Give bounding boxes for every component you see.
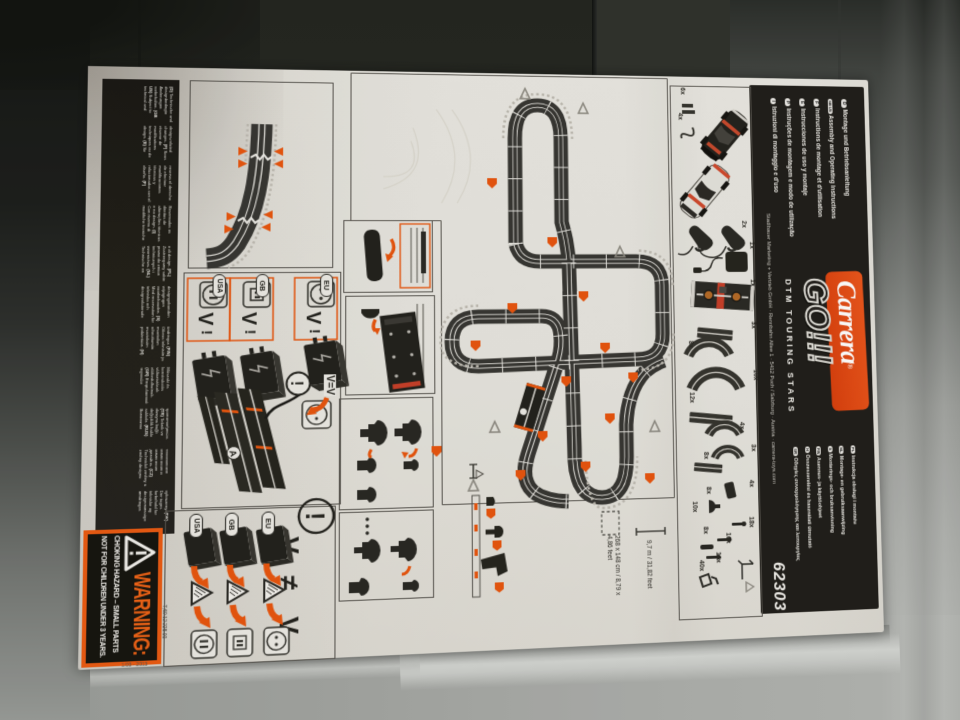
svg-text:!: ! [300, 512, 329, 521]
svg-text:!: ! [198, 330, 216, 335]
svg-text:V: V [302, 311, 325, 325]
svg-text:V: V [238, 312, 261, 326]
svg-text:!: ! [306, 329, 324, 334]
svg-text:!: ! [287, 381, 305, 387]
svg-text:V: V [194, 312, 218, 326]
svg-text:!: ! [242, 330, 260, 335]
